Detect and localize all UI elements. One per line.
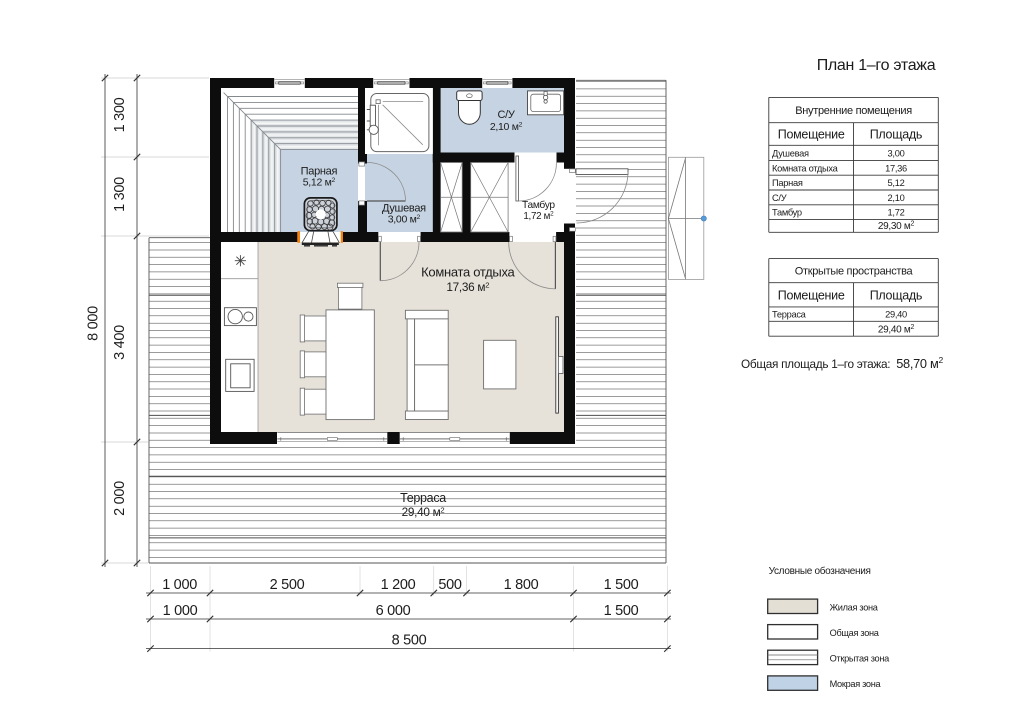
svg-text:2 500: 2 500 [270,577,305,593]
svg-text:2 000: 2 000 [112,481,128,516]
svg-text:1 500: 1 500 [604,603,639,619]
svg-text:Тамбур: Тамбур [522,199,555,211]
svg-text:8 000: 8 000 [86,306,102,341]
svg-text:С/У: С/У [497,109,515,121]
svg-text:1,72: 1,72 [888,208,905,218]
svg-text:1 800: 1 800 [504,577,539,593]
svg-text:17,36 м2: 17,36 м2 [446,280,489,294]
svg-text:Парная: Парная [772,178,803,188]
svg-text:Условные обозначения: Условные обозначения [769,565,871,577]
svg-text:Комната отдыха: Комната отдыха [772,163,839,173]
svg-text:5,12 м2: 5,12 м2 [303,177,336,189]
svg-text:500: 500 [438,577,462,593]
svg-text:Внутренние помещения: Внутренние помещения [795,105,912,117]
svg-text:Открытая зона: Открытая зона [830,653,891,663]
svg-text:Терраса: Терраса [772,310,807,320]
svg-text:Открытые пространства: Открытые пространства [795,266,914,278]
svg-text:Площадь: Площадь [870,128,922,142]
svg-text:29,40 м2: 29,40 м2 [878,324,915,336]
svg-text:Площадь: Площадь [870,289,922,303]
svg-text:8 500: 8 500 [392,633,427,649]
svg-text:1 300: 1 300 [112,97,128,132]
svg-text:Общая площадь 1–го этажа: 58,: Общая площадь 1–го этажа: 58,70 м2 [741,355,943,371]
svg-text:29,40 м2: 29,40 м2 [402,505,445,519]
svg-text:1 000: 1 000 [162,577,197,593]
svg-text:Тамбур: Тамбур [772,208,802,218]
svg-text:1,72 м2: 1,72 м2 [523,211,554,223]
svg-text:3 400: 3 400 [112,325,128,360]
svg-text:2,10: 2,10 [888,193,905,203]
svg-text:29,30 м2: 29,30 м2 [878,221,915,233]
svg-text:1 000: 1 000 [163,603,198,619]
svg-text:17,36: 17,36 [885,163,907,173]
svg-text:3,00 м2: 3,00 м2 [388,213,421,225]
svg-text:Общая зона: Общая зона [830,628,880,638]
svg-text:Душевая: Душевая [772,149,809,159]
svg-text:1 300: 1 300 [112,177,128,212]
svg-text:С/У: С/У [772,193,787,203]
svg-text:1 500: 1 500 [604,577,639,593]
svg-text:5,12: 5,12 [888,178,905,188]
svg-text:Жилая зона: Жилая зона [830,602,879,612]
svg-text:Терраса: Терраса [400,491,446,505]
svg-text:29,40: 29,40 [885,310,907,320]
svg-text:Комната отдыха: Комната отдыха [421,265,515,280]
svg-text:1 200: 1 200 [381,577,416,593]
svg-text:Помещение: Помещение [778,128,845,142]
svg-text:Мокрая зона: Мокрая зона [830,679,882,689]
svg-text:2,10 м2: 2,10 м2 [490,121,523,133]
svg-text:План 1–го этажа: План 1–го этажа [817,57,936,74]
svg-text:6 000: 6 000 [376,603,411,619]
svg-text:Помещение: Помещение [778,289,845,303]
svg-text:3,00: 3,00 [888,149,905,159]
